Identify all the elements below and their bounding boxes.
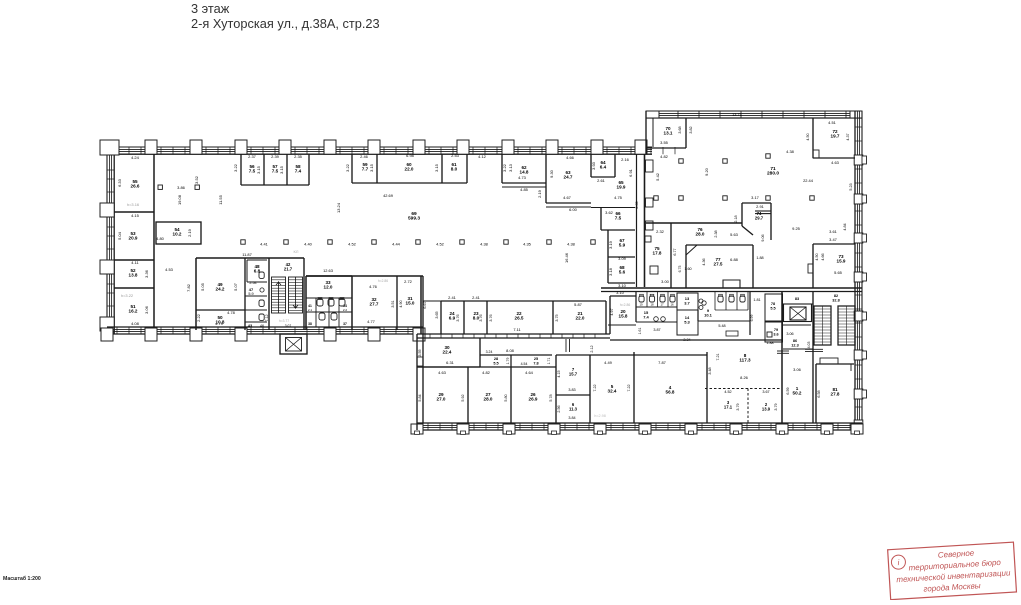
svg-text:2.61: 2.61: [597, 178, 605, 183]
svg-text:117.3: 117.3: [739, 358, 751, 363]
svg-text:15.8: 15.8: [619, 314, 628, 319]
svg-text:6.99: 6.99: [750, 315, 754, 322]
svg-text:13.71: 13.71: [732, 112, 742, 117]
svg-text:82: 82: [834, 294, 838, 298]
svg-text:5.6: 5.6: [619, 270, 626, 275]
svg-text:6.9: 6.9: [449, 316, 456, 321]
svg-text:3.18: 3.18: [608, 267, 613, 275]
svg-text:8.0: 8.0: [451, 167, 458, 172]
svg-text:4.80: 4.80: [156, 236, 164, 241]
svg-text:7.22: 7.22: [627, 384, 631, 391]
svg-text:17: 17: [660, 303, 664, 307]
svg-text:3.79: 3.79: [736, 403, 740, 410]
svg-text:3.07: 3.07: [285, 324, 292, 328]
svg-text:7.22: 7.22: [593, 384, 597, 391]
svg-text:16.2: 16.2: [129, 309, 138, 314]
svg-text:7.82: 7.82: [186, 284, 191, 292]
svg-text:42.69: 42.69: [383, 193, 393, 198]
svg-text:11.3: 11.3: [569, 407, 578, 412]
svg-text:3.22: 3.22: [233, 164, 238, 172]
svg-text:3.24: 3.24: [486, 350, 493, 354]
svg-text:4.12: 4.12: [478, 154, 486, 159]
svg-text:25: 25: [534, 357, 538, 361]
svg-text:4.50: 4.50: [806, 133, 810, 140]
svg-text:27.7: 27.7: [370, 302, 379, 307]
svg-text:2-я Хуторская ул., д.38А, стр.: 2-я Хуторская ул., д.38А, стр.23: [191, 16, 380, 31]
svg-text:3.86: 3.86: [177, 185, 185, 190]
svg-text:3.76: 3.76: [456, 314, 460, 321]
svg-text:16: 16: [670, 303, 674, 307]
svg-text:5.78: 5.78: [549, 394, 553, 401]
svg-text:h=2.86: h=2.86: [378, 279, 388, 283]
svg-text:4.97: 4.97: [610, 308, 614, 315]
svg-text:3.48: 3.48: [708, 367, 712, 374]
svg-text:1.71: 1.71: [547, 358, 551, 365]
svg-text:6.67: 6.67: [423, 301, 427, 308]
svg-text:4.11: 4.11: [131, 260, 139, 265]
svg-text:28: 28: [494, 357, 498, 361]
svg-text:4.66: 4.66: [566, 155, 574, 160]
svg-text:3.15: 3.15: [434, 163, 439, 171]
svg-text:27.5: 27.5: [714, 262, 723, 267]
svg-text:4.63: 4.63: [438, 370, 446, 375]
svg-text:5.80: 5.80: [504, 394, 508, 401]
svg-text:3.36: 3.36: [144, 269, 149, 277]
svg-text:3.10: 3.10: [618, 283, 626, 288]
svg-text:32.8: 32.8: [832, 299, 839, 303]
svg-text:8.08: 8.08: [506, 348, 514, 353]
svg-text:56.8: 56.8: [666, 390, 675, 395]
svg-text:19.9: 19.9: [617, 185, 626, 190]
svg-text:18: 18: [650, 303, 654, 307]
svg-text:4.52: 4.52: [436, 242, 444, 247]
svg-text:83: 83: [795, 297, 799, 301]
svg-text:3.22: 3.22: [345, 164, 350, 172]
svg-text:6.75: 6.75: [678, 266, 682, 273]
svg-text:7.5: 7.5: [272, 169, 279, 174]
svg-text:3.06: 3.06: [793, 367, 801, 372]
svg-text:5.63: 5.63: [730, 232, 738, 237]
svg-text:2.41: 2.41: [472, 295, 480, 300]
svg-text:22.0: 22.0: [576, 316, 585, 321]
svg-text:6.00: 6.00: [569, 207, 577, 212]
svg-text:22.0: 22.0: [405, 167, 414, 172]
svg-text:15.9: 15.9: [837, 259, 846, 264]
svg-text:3.67: 3.67: [762, 390, 769, 394]
svg-text:5.48: 5.48: [718, 324, 725, 328]
svg-text:4.41: 4.41: [260, 242, 268, 247]
svg-text:3.68: 3.68: [678, 126, 682, 133]
svg-text:2.54: 2.54: [249, 281, 256, 285]
svg-text:5.84: 5.84: [418, 394, 422, 401]
svg-text:7.5: 7.5: [249, 169, 256, 174]
svg-text:46: 46: [260, 324, 264, 328]
svg-text:38: 38: [308, 322, 312, 326]
svg-text:3.55: 3.55: [660, 140, 668, 145]
svg-text:КЛ: КЛ: [294, 249, 299, 254]
svg-text:19.7: 19.7: [831, 134, 840, 139]
svg-text:3.17: 3.17: [751, 195, 759, 200]
svg-text:2.19: 2.19: [187, 229, 192, 237]
svg-text:20.9: 20.9: [129, 236, 138, 241]
svg-text:2.41: 2.41: [448, 295, 456, 300]
svg-text:2.32: 2.32: [656, 229, 664, 234]
svg-text:28.0: 28.0: [696, 232, 705, 237]
svg-text:3.15: 3.15: [279, 165, 284, 173]
svg-text:3.51: 3.51: [391, 300, 395, 307]
svg-text:4.90: 4.90: [399, 300, 403, 307]
svg-text:4.52: 4.52: [724, 390, 731, 394]
svg-text:6.77: 6.77: [673, 248, 677, 255]
svg-text:2.12: 2.12: [590, 345, 594, 352]
svg-text:h=3.77: h=3.77: [279, 319, 289, 323]
svg-text:3.09: 3.09: [618, 256, 626, 261]
svg-text:2.37: 2.37: [248, 154, 256, 159]
svg-text:32.4: 32.4: [608, 389, 617, 394]
svg-text:15.0: 15.0: [406, 301, 415, 306]
svg-text:4.82: 4.82: [482, 370, 490, 375]
svg-text:6.98: 6.98: [406, 153, 414, 158]
svg-text:7.4: 7.4: [295, 169, 302, 174]
svg-text:6.33: 6.33: [117, 178, 122, 187]
svg-text:37: 37: [343, 322, 347, 326]
svg-text:17.8: 17.8: [653, 251, 662, 256]
svg-text:3.83: 3.83: [568, 388, 575, 392]
svg-text:13.9: 13.9: [762, 407, 771, 412]
svg-text:7.21: 7.21: [716, 353, 720, 360]
svg-text:3.52: 3.52: [194, 176, 199, 184]
svg-text:2.35: 2.35: [294, 154, 302, 159]
svg-text:13.8: 13.8: [129, 273, 138, 278]
svg-text:5.3: 5.3: [684, 320, 690, 325]
svg-text:4.73: 4.73: [518, 175, 526, 180]
svg-text:1.60: 1.60: [684, 267, 691, 271]
svg-text:4.24: 4.24: [131, 155, 140, 160]
svg-text:2.56: 2.56: [557, 405, 561, 412]
svg-text:4.52: 4.52: [348, 242, 356, 247]
svg-text:4.08: 4.08: [131, 321, 140, 326]
svg-text:3.61: 3.61: [829, 229, 837, 234]
svg-text:h=2.98: h=2.98: [594, 414, 606, 418]
svg-text:19: 19: [639, 303, 643, 307]
svg-text:7.12: 7.12: [265, 314, 269, 321]
svg-text:5.23: 5.23: [849, 183, 853, 190]
svg-text:280.0: 280.0: [767, 171, 779, 177]
svg-text:3.62: 3.62: [605, 210, 613, 215]
svg-text:5.07: 5.07: [233, 283, 238, 291]
svg-text:4.50: 4.50: [815, 253, 819, 260]
svg-text:4.03: 4.03: [807, 342, 811, 349]
svg-text:3.93: 3.93: [591, 161, 596, 169]
svg-text:4.84: 4.84: [843, 223, 847, 230]
svg-text:13.24: 13.24: [336, 202, 341, 213]
svg-text:10.8: 10.8: [216, 320, 225, 325]
svg-text:4.77: 4.77: [367, 319, 375, 324]
svg-text:6.4: 6.4: [600, 165, 607, 170]
svg-text:3.15: 3.15: [256, 165, 261, 173]
svg-text:3.7: 3.7: [684, 301, 690, 306]
svg-text:11.55: 11.55: [218, 194, 223, 204]
svg-text:4.75: 4.75: [614, 195, 622, 200]
svg-text:14.8: 14.8: [520, 170, 529, 175]
svg-text:6.31: 6.31: [446, 360, 454, 365]
svg-text:4.85: 4.85: [520, 187, 528, 192]
svg-text:26.6: 26.6: [131, 184, 140, 189]
svg-text:3.10: 3.10: [616, 290, 624, 295]
svg-text:4.40: 4.40: [304, 242, 312, 247]
svg-text:3.82: 3.82: [689, 126, 693, 133]
svg-text:h=3.16: h=3.16: [127, 202, 140, 207]
svg-text:3.65: 3.65: [435, 311, 439, 318]
svg-text:4.82: 4.82: [660, 154, 668, 159]
svg-text:5.5: 5.5: [770, 307, 775, 311]
svg-text:7.5: 7.5: [615, 216, 622, 221]
svg-text:2.05: 2.05: [635, 201, 639, 208]
svg-text:79: 79: [774, 328, 778, 332]
svg-text:2.53: 2.53: [451, 153, 459, 158]
svg-text:12.3: 12.3: [791, 344, 798, 348]
svg-text:9.06: 9.06: [761, 234, 765, 241]
svg-text:5.05: 5.05: [200, 282, 205, 290]
svg-text:6.91: 6.91: [628, 169, 633, 177]
svg-text:22.4: 22.4: [443, 350, 452, 355]
svg-text:5.65: 5.65: [834, 270, 842, 275]
svg-text:3.06: 3.06: [144, 305, 149, 313]
svg-text:4.38: 4.38: [567, 242, 575, 247]
svg-text:50.2: 50.2: [793, 391, 802, 396]
svg-text:5.92: 5.92: [461, 394, 465, 401]
svg-text:5.9: 5.9: [248, 292, 253, 296]
svg-text:4.51: 4.51: [828, 120, 836, 125]
svg-text:12.0: 12.0: [324, 285, 333, 290]
svg-text:4.64: 4.64: [525, 370, 533, 375]
svg-text:4.66: 4.66: [821, 253, 825, 260]
svg-text:3.00: 3.00: [661, 279, 669, 284]
svg-text:4.15: 4.15: [557, 370, 561, 377]
svg-text:4.67: 4.67: [563, 195, 571, 200]
svg-text:3.6: 3.6: [773, 333, 778, 337]
svg-text:3.75: 3.75: [555, 314, 559, 321]
svg-text:2.72: 2.72: [404, 279, 412, 284]
svg-text:26.5: 26.5: [515, 316, 524, 321]
svg-text:10.1: 10.1: [704, 313, 713, 318]
svg-text:4.38: 4.38: [786, 149, 794, 154]
svg-text:9.30: 9.30: [549, 169, 554, 177]
svg-text:3.13: 3.13: [508, 163, 513, 171]
svg-text:5.87: 5.87: [574, 302, 582, 307]
svg-text:3.55: 3.55: [418, 349, 422, 356]
svg-text:h=3.22: h=3.22: [121, 293, 133, 298]
svg-text:3.15: 3.15: [369, 163, 374, 171]
svg-text:7.11: 7.11: [513, 327, 520, 332]
svg-text:10.2: 10.2: [173, 232, 182, 237]
svg-text:7.87: 7.87: [658, 360, 666, 365]
svg-text:17.1: 17.1: [724, 405, 733, 410]
svg-text:16.46: 16.46: [564, 252, 569, 263]
svg-text:9.25: 9.25: [792, 226, 800, 231]
svg-text:3.87: 3.87: [653, 328, 660, 332]
svg-text:2.1: 2.1: [308, 308, 313, 312]
svg-text:1.88: 1.88: [756, 256, 763, 260]
svg-text:1.81: 1.81: [753, 298, 760, 302]
svg-text:6.88: 6.88: [730, 257, 738, 262]
svg-text:Масштаб 1:200: Масштаб 1:200: [3, 575, 41, 582]
svg-text:5.42: 5.42: [655, 173, 660, 181]
svg-text:1.79: 1.79: [506, 358, 510, 365]
svg-text:86: 86: [793, 339, 797, 343]
svg-text:3.19: 3.19: [608, 241, 613, 249]
svg-text:27.0: 27.0: [437, 397, 446, 402]
svg-text:78: 78: [771, 302, 775, 306]
svg-text:4.35: 4.35: [523, 242, 531, 247]
svg-text:11.87: 11.87: [242, 252, 252, 257]
svg-text:5.9: 5.9: [619, 243, 626, 248]
svg-text:26.9: 26.9: [529, 397, 538, 402]
svg-text:3.79: 3.79: [774, 403, 778, 410]
svg-text:12.63: 12.63: [323, 268, 334, 273]
svg-text:27.8: 27.8: [831, 392, 840, 397]
svg-text:4.38: 4.38: [480, 242, 488, 247]
svg-text:22.44: 22.44: [803, 178, 814, 183]
svg-text:2.19: 2.19: [537, 190, 542, 198]
svg-text:9.20: 9.20: [704, 167, 709, 175]
svg-text:2.46: 2.46: [360, 154, 368, 159]
svg-text:4.44: 4.44: [392, 242, 400, 247]
svg-text:4.54: 4.54: [521, 362, 528, 366]
svg-text:4.53: 4.53: [165, 267, 173, 272]
svg-text:4.63: 4.63: [831, 160, 839, 165]
svg-text:24.7: 24.7: [564, 175, 573, 180]
svg-text:2.2: 2.2: [343, 308, 348, 312]
svg-text:3.84: 3.84: [568, 416, 575, 420]
svg-text:1.88: 1.88: [766, 341, 773, 345]
svg-text:8.26: 8.26: [740, 375, 748, 380]
svg-text:7.8: 7.8: [533, 362, 538, 366]
svg-text:24.2: 24.2: [216, 287, 225, 292]
svg-text:7.4: 7.4: [643, 315, 649, 320]
svg-text:2.22: 2.22: [196, 314, 201, 322]
svg-text:4.78: 4.78: [227, 310, 235, 315]
svg-text:2.39: 2.39: [271, 154, 279, 159]
svg-text:5.5: 5.5: [493, 362, 498, 366]
svg-text:15.7: 15.7: [569, 372, 578, 377]
svg-text:19.08: 19.08: [177, 194, 182, 205]
svg-text:6.58: 6.58: [817, 390, 821, 397]
svg-text:1.61: 1.61: [638, 328, 642, 335]
svg-text:21.7: 21.7: [284, 267, 293, 272]
svg-text:3.76: 3.76: [479, 314, 483, 321]
svg-text:4.15: 4.15: [131, 213, 140, 218]
svg-text:28.0: 28.0: [484, 397, 493, 402]
svg-text:5.04: 5.04: [117, 231, 122, 240]
svg-text:2.18: 2.18: [734, 215, 738, 222]
svg-text:3.22: 3.22: [502, 164, 507, 172]
svg-text:4.76: 4.76: [369, 284, 377, 289]
svg-text:3.76: 3.76: [489, 314, 493, 321]
svg-text:2.16: 2.16: [621, 157, 629, 162]
svg-text:7.7: 7.7: [362, 167, 369, 172]
svg-text:4.36: 4.36: [702, 258, 706, 265]
svg-text:3.47: 3.47: [829, 237, 837, 242]
svg-text:3.06: 3.06: [786, 332, 793, 336]
svg-text:13.1: 13.1: [664, 131, 673, 136]
svg-text:3 этаж: 3 этаж: [191, 1, 230, 16]
svg-text:2.91: 2.91: [756, 204, 764, 209]
svg-text:29.7: 29.7: [755, 216, 764, 221]
svg-text:4.37: 4.37: [846, 133, 850, 140]
svg-text:6.59: 6.59: [786, 387, 790, 394]
svg-text:4.49: 4.49: [604, 360, 612, 365]
svg-text:2.38: 2.38: [714, 230, 718, 237]
svg-text:599.3: 599.3: [408, 216, 420, 222]
svg-text:h=2.86: h=2.86: [620, 303, 631, 307]
